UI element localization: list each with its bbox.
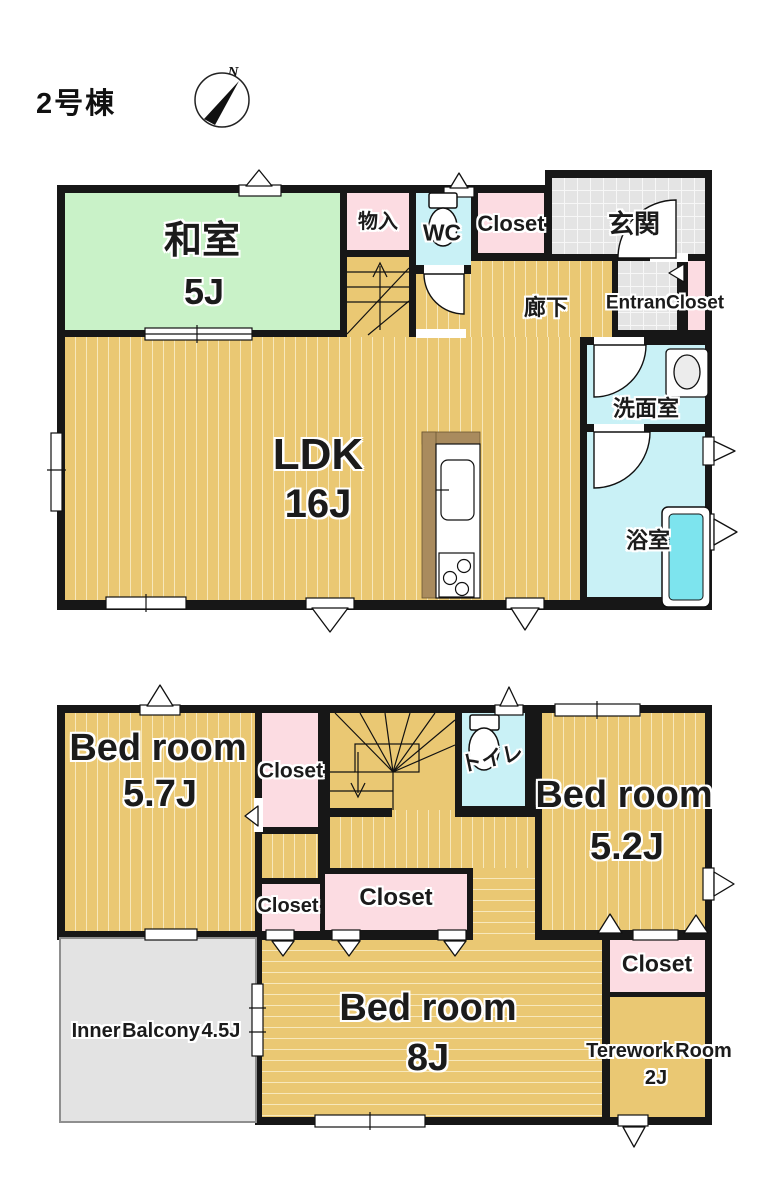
room-stairs-2f: [330, 713, 455, 810]
label-closet-c: Closet: [359, 886, 432, 910]
label-closet-b: Closet: [257, 896, 318, 916]
compass-n-label: N: [228, 65, 239, 82]
floor-plan: 2号棟 N: [0, 0, 780, 1200]
label-ldk-size: 16J: [285, 484, 352, 524]
label-ldk: LDK: [273, 433, 363, 477]
label-bathroom: 浴室: [626, 530, 670, 552]
label-bedroom8-size: 8J: [407, 1039, 449, 1077]
stairs2-wall: [330, 808, 392, 817]
label-washroom: 洗面室: [613, 398, 679, 420]
label-hallway-1f: 廊下: [524, 297, 568, 319]
label-closet-d: Closet: [622, 953, 692, 976]
compass-icon: [195, 73, 249, 127]
label-closet-a: Closet: [259, 761, 323, 782]
label-washitsu-size: 5J: [184, 274, 224, 310]
wc-bottom-wall: [416, 265, 471, 274]
label-bedroom57: Bed room: [69, 729, 246, 767]
label-bedroom52-size: 5.2J: [590, 828, 664, 866]
label-bedroom8: Bed room: [339, 989, 516, 1027]
label-genkan: 玄関: [608, 211, 660, 237]
hall-patch: [262, 834, 318, 878]
label-inner-balcony: Inner Balcony 4.5J: [72, 1021, 241, 1041]
room-bathroom: [587, 432, 705, 597]
label-entrance-closet: EntranCloset: [606, 294, 724, 313]
label-bedroom52: Bed room: [535, 776, 712, 814]
toilet-wall: [455, 806, 535, 817]
page-title: 2号棟: [36, 80, 116, 122]
label-telework: Terework Room: [586, 1041, 732, 1061]
label-telework-size: 2J: [645, 1068, 667, 1088]
label-wc: WC: [423, 222, 461, 245]
room-bedroom-52: [542, 713, 705, 930]
room-hallway-2f: [330, 810, 535, 868]
label-bedroom57-size: 5.7J: [123, 775, 197, 813]
room-stairs-1f: [347, 257, 409, 337]
label-washitsu: 和室: [164, 222, 240, 260]
label-closet-1f: Closet: [477, 213, 544, 235]
label-monoire: 物入: [358, 212, 398, 232]
corridor-2f: [473, 868, 535, 940]
